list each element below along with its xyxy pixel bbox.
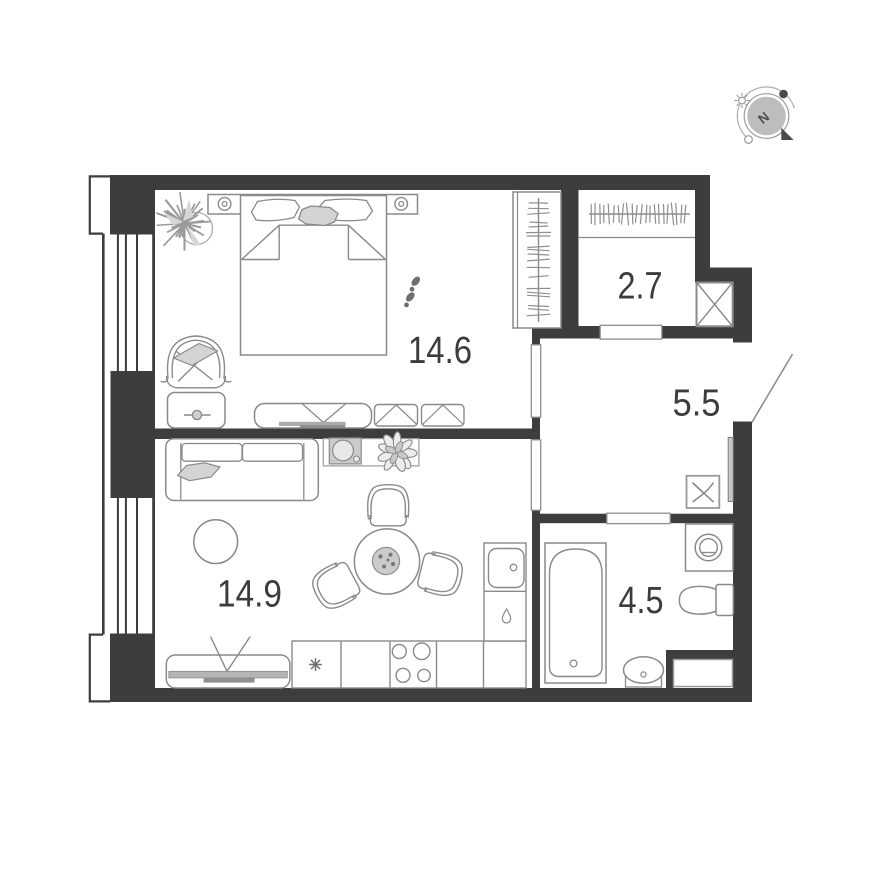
svg-text:4.5: 4.5 xyxy=(619,580,664,622)
svg-text:14.6: 14.6 xyxy=(408,330,472,372)
svg-text:14.9: 14.9 xyxy=(217,574,282,616)
svg-text:2.7: 2.7 xyxy=(618,266,663,308)
svg-text:5.5: 5.5 xyxy=(673,383,721,425)
